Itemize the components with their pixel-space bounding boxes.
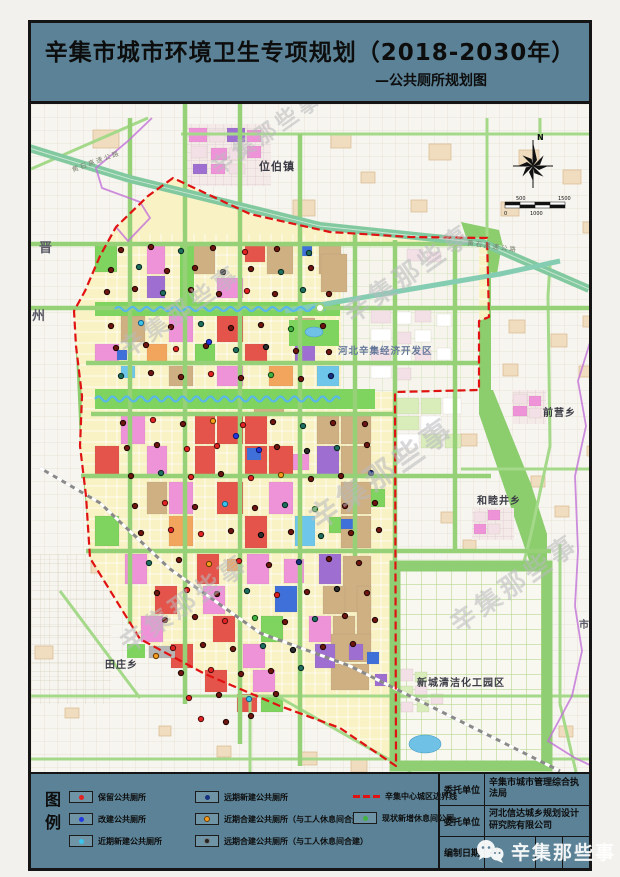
svg-text:0: 0 (504, 211, 507, 217)
legend-swatch (69, 813, 93, 825)
legend-label: 远期新建公共厕所 (224, 792, 288, 803)
titleblock-label: 委托单位 (440, 806, 485, 837)
legend-column-2: 远期新建公共厕所近期合建公共厕所（与工人休息间合建）远期合建公共厕所（与工人休息… (195, 791, 353, 868)
legend-label: 改建公共厕所 (98, 814, 146, 825)
boundary-dash-swatch (353, 795, 380, 798)
legend-swatch (195, 835, 219, 847)
legend-swatch (69, 791, 93, 803)
wechat-icon (475, 839, 505, 865)
svg-text:1500: 1500 (558, 196, 571, 202)
svg-text:州: 州 (31, 309, 46, 324)
planning-poster: 辛集市城市环境卫生专项规划（2018-2030年） —公共厕所规划图 位伯镇晋州… (0, 0, 620, 877)
svg-text:市: 市 (579, 618, 589, 631)
legend-label: 保留公共厕所 (98, 792, 146, 803)
legend-items: 保留公共厕所改建公共厕所近期新建公共厕所远期新建公共厕所近期合建公共厕所（与工人… (69, 778, 457, 868)
svg-text:河北辛集经济开发区: 河北辛集经济开发区 (338, 345, 433, 357)
svg-text:500: 500 (516, 196, 526, 202)
titleblock-row: 委托单位辛集市城市管理综合执法局 (440, 774, 589, 806)
legend-label: 远期合建公共厕所（与工人休息间合建） (224, 836, 368, 847)
legend-swatch (69, 835, 93, 847)
legend-heading-char: 图 (45, 788, 61, 811)
legend-item: 近期新建公共厕所 (69, 835, 195, 847)
wechat-watermark: 辛集那些事 (475, 838, 616, 865)
titleblock-row: 委托单位河北信达城乡规划设计研究院有限公司 (440, 806, 589, 838)
legend: 图例 保留公共厕所改建公共厕所近期新建公共厕所远期新建公共厕所近期合建公共厕所（… (31, 774, 438, 868)
legend-swatch (195, 791, 219, 803)
legend-heading-char: 例 (45, 811, 61, 834)
roundabout (316, 304, 324, 312)
legend-item: 远期新建公共厕所 (195, 791, 353, 803)
header-band: 辛集市城市环境卫生专项规划（2018-2030年） —公共厕所规划图 (31, 23, 589, 104)
map-area: 位伯镇晋州河北辛集经济开发区前营乡和睦井乡田庄乡新城清洁化工园区市黄石高速公路黄… (31, 104, 589, 772)
legend-swatch (353, 812, 377, 824)
titleblock-value: 辛集市城市管理综合执法局 (485, 774, 589, 805)
map-canvas: 位伯镇晋州河北辛集经济开发区前营乡和睦井乡田庄乡新城清洁化工园区市黄石高速公路黄… (31, 104, 589, 772)
svg-text:晋: 晋 (39, 241, 53, 256)
legend-swatch (195, 813, 219, 825)
page-subtitle: —公共厕所规划图 (375, 70, 487, 90)
page-title: 辛集市城市环境卫生专项规划（2018-2030年） (31, 33, 589, 67)
legend-label: 近期新建公共厕所 (98, 836, 162, 847)
titleblock-label: 委托单位 (440, 774, 485, 805)
svg-text:田庄乡: 田庄乡 (105, 658, 138, 671)
titleblock-value: 河北信达城乡规划设计研究院有限公司 (485, 806, 589, 837)
svg-text:位伯镇: 位伯镇 (259, 159, 295, 173)
svg-text:新城清洁化工园区: 新城清洁化工园区 (417, 676, 505, 689)
svg-text:1000: 1000 (530, 211, 543, 217)
legend-label: 近期合建公共厕所（与工人休息间合建） (224, 814, 368, 825)
svg-text:N: N (537, 133, 544, 142)
svg-text:前营乡: 前营乡 (543, 406, 576, 419)
wechat-watermark-text: 辛集那些事 (511, 838, 616, 865)
svg-text:和睦井乡: 和睦井乡 (476, 494, 521, 507)
legend-heading: 图例 (45, 788, 61, 868)
legend-item: 改建公共厕所 (69, 813, 195, 825)
legend-column-1: 保留公共厕所改建公共厕所近期新建公共厕所 (69, 791, 195, 868)
poster-frame: 辛集市城市环境卫生专项规划（2018-2030年） —公共厕所规划图 位伯镇晋州… (28, 20, 592, 871)
legend-item: 远期合建公共厕所（与工人休息间合建） (195, 835, 353, 847)
legend-item: 近期合建公共厕所（与工人休息间合建） (195, 813, 353, 825)
legend-item: 保留公共厕所 (69, 791, 195, 803)
